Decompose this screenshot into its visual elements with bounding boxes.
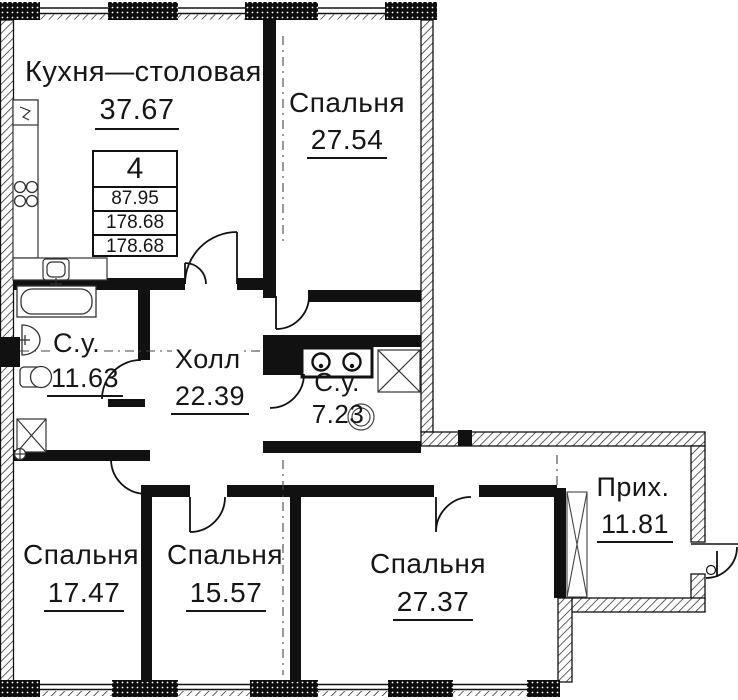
room-area-bedroom2: 17.47 [34, 579, 134, 612]
room-label-hallway: Прих. [593, 474, 673, 501]
room-label-bedroom2: Спальня [21, 541, 141, 569]
room-label-kitchen: Кухня—столовая [25, 58, 245, 87]
bathtub-icon [17, 286, 96, 317]
shower-cabin-icon [378, 350, 420, 392]
bottom-wall-windows [0, 680, 560, 697]
room-area-hallway: 11.81 [590, 511, 680, 543]
wardrobe-icon [567, 492, 587, 597]
room-area-bedroom1: 27.54 [297, 126, 397, 159]
room-area-su1: 11.63 [40, 365, 130, 397]
room-area-su2: 7.23 [298, 401, 378, 428]
room-label-bedroom4: Спальня [368, 550, 488, 578]
bedroom2-door [111, 459, 146, 494]
room-label-su2: С.у. [307, 369, 367, 395]
kitchen-door-big-leaf [185, 232, 237, 284]
floor-plan: Кухня—столовая 37.67 Спальня 27.54 С.у. … [0, 0, 738, 700]
bedroom4-door [436, 497, 471, 532]
entrance-door [706, 547, 737, 578]
room-area-bedroom4: 27.37 [383, 588, 483, 621]
room-area-hall: 22.39 [165, 383, 255, 415]
stamp-living-area: 87.95 [94, 186, 176, 210]
room-label-bedroom1: Спальня [287, 89, 407, 117]
room-area-kitchen: 37.67 [87, 96, 187, 130]
room-label-hall: Холл [172, 346, 244, 373]
stamp-total-area-reduced: 178.68 [94, 234, 176, 258]
room-area-bedroom3: 15.57 [176, 579, 276, 612]
top-wall-windows [0, 2, 437, 20]
room-label-bedroom3: Спальня [165, 541, 285, 569]
bedroom3-door [190, 497, 225, 532]
entrance-door-handle [707, 566, 716, 575]
apartment-stamp: 4 87.95 178.68 178.68 [92, 150, 178, 257]
stamp-total-area: 178.68 [94, 210, 176, 234]
bedroom1-door [276, 296, 309, 329]
stamp-rooms-count: 4 [94, 152, 176, 186]
room-label-su1: С.у. [50, 330, 103, 357]
